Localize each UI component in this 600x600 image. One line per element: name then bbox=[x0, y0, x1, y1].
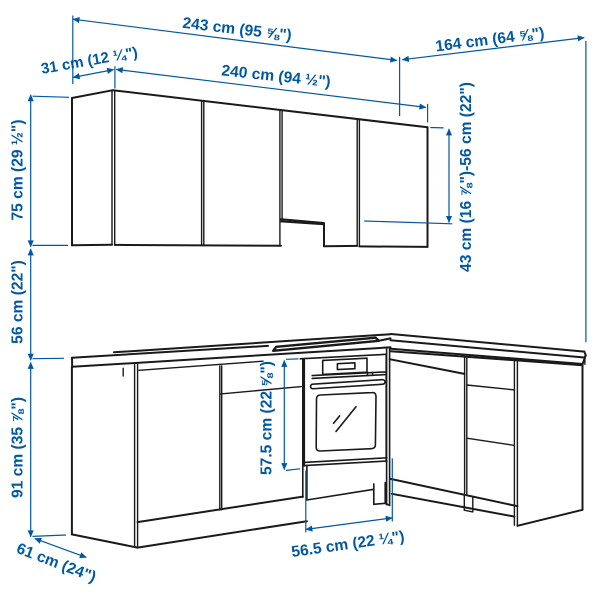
svg-text:43 cm (16 ⅞")-56 cm (22"): 43 cm (16 ⅞")-56 cm (22") bbox=[458, 82, 475, 272]
svg-text:31 cm (12 ¼"): 31 cm (12 ¼") bbox=[40, 44, 139, 78]
svg-text:56 cm (22"): 56 cm (22") bbox=[10, 260, 27, 344]
svg-text:240 cm (94 ½"): 240 cm (94 ½") bbox=[221, 62, 332, 91]
svg-text:91 cm (35 ⅞"): 91 cm (35 ⅞") bbox=[10, 397, 27, 498]
svg-text:164 cm (64 ⅝"): 164 cm (64 ⅝") bbox=[434, 25, 545, 56]
svg-text:61 cm (24"): 61 cm (24") bbox=[14, 540, 98, 586]
svg-text:56.5 cm (22 ¼"): 56.5 cm (22 ¼") bbox=[290, 528, 405, 561]
svg-text:75 cm (29 ½"): 75 cm (29 ½") bbox=[10, 119, 27, 220]
svg-text:57.5 cm (22 ⅝"): 57.5 cm (22 ⅝") bbox=[259, 361, 276, 475]
